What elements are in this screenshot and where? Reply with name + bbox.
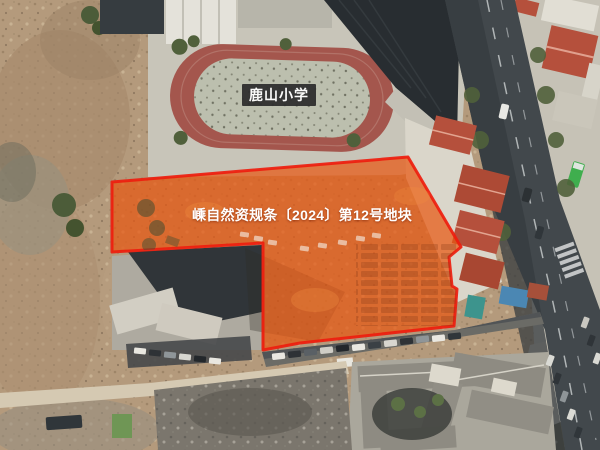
- satellite-imagery: [0, 0, 600, 450]
- tree-icon: [464, 87, 480, 103]
- tree-icon: [557, 179, 575, 197]
- teal-roof-building: [464, 295, 486, 320]
- building-roof: [238, 0, 332, 28]
- tree-icon: [414, 406, 426, 418]
- excluded-building: [109, 245, 262, 368]
- tree-icon: [66, 219, 84, 237]
- bus-icon: [46, 415, 83, 430]
- tree-icon: [391, 397, 405, 411]
- building-roof: [100, 0, 164, 34]
- tree-icon: [137, 199, 155, 217]
- tree-icon: [52, 193, 76, 217]
- green-roof-shed: [112, 414, 132, 438]
- tree-icon: [149, 220, 165, 236]
- tree-icon: [530, 47, 546, 63]
- tree-icon: [548, 132, 564, 148]
- tree-icon: [81, 6, 99, 24]
- tree-icon: [537, 86, 555, 104]
- aerial-map-view: 鹿山小学 嵊自然资规条〔2024〕第12号地块: [0, 0, 600, 450]
- running-track: [168, 35, 395, 154]
- tree-icon: [432, 394, 444, 406]
